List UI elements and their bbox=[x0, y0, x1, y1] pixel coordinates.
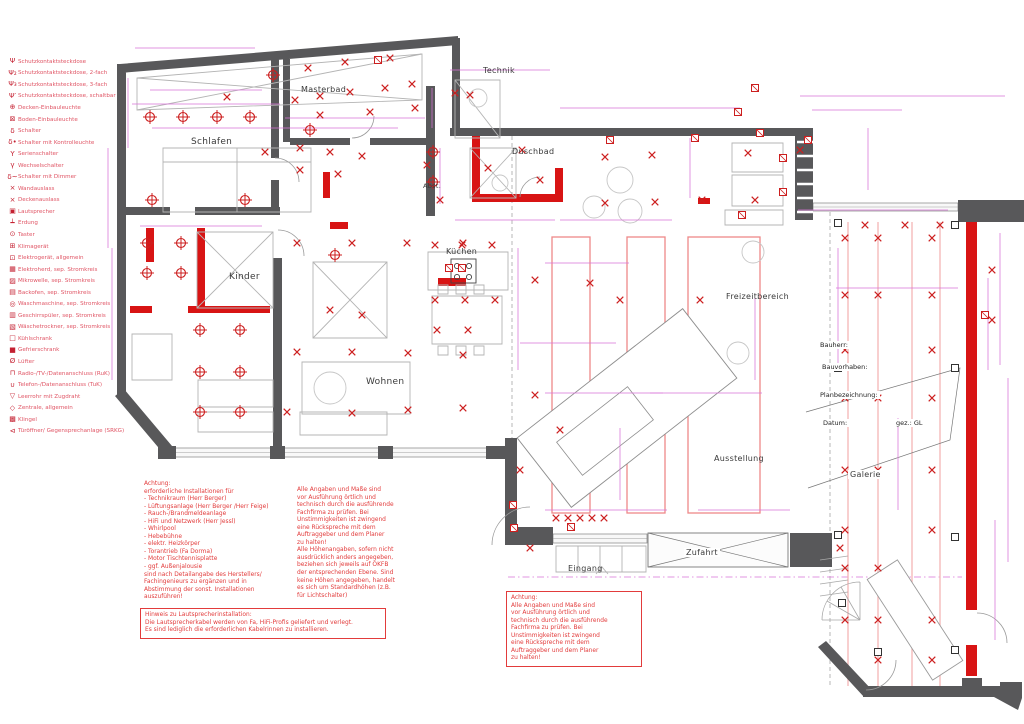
legend-label: Radio-/TV-/Datenanschluss (RuK) bbox=[18, 371, 110, 377]
room-label-technik: Technik bbox=[483, 66, 515, 75]
outlet-x-icon bbox=[297, 167, 304, 174]
outlet-x-icon bbox=[929, 347, 936, 354]
ceiling-light-icon bbox=[243, 110, 257, 124]
outlet-x-icon bbox=[467, 92, 474, 99]
ceiling-light-icon bbox=[210, 110, 224, 124]
outlet-x-icon bbox=[649, 152, 656, 159]
titleblock-bauherr: Bauherr: bbox=[818, 341, 850, 349]
device-box-icon bbox=[752, 85, 759, 92]
outlet-x-icon bbox=[359, 153, 366, 160]
legend-label: Schutzkontaktsteckdose bbox=[18, 59, 86, 65]
device-box-icon bbox=[735, 109, 742, 116]
device-box-icon bbox=[446, 265, 453, 272]
titleblock-frame-lines bbox=[806, 368, 960, 488]
outlet-x-icon bbox=[532, 392, 539, 399]
dimmer-switch-icon: δ~ bbox=[7, 174, 18, 181]
fridge-icon: □ bbox=[7, 335, 18, 342]
device-box-icon bbox=[780, 189, 787, 196]
legend-item: δSchalter bbox=[7, 125, 135, 137]
phone-data-icon: ∪ bbox=[7, 382, 18, 389]
pushbutton-icon: ⊙ bbox=[7, 231, 18, 238]
outlet-x-icon bbox=[532, 277, 539, 284]
room-label-eingang: Eingang bbox=[568, 564, 603, 573]
outlet-x-icon bbox=[842, 235, 849, 242]
legend-item: ▤Backofen, sep. Stromkreis bbox=[7, 287, 135, 299]
ceiling-light-icon bbox=[193, 323, 207, 337]
outlet-x-icon bbox=[349, 240, 356, 247]
outlet-x-icon bbox=[327, 307, 334, 314]
legend-item: ΥSerienschalter bbox=[7, 148, 135, 160]
ground-icon: ┷ bbox=[7, 220, 18, 227]
appliance-icon: ⊡ bbox=[7, 255, 18, 262]
legend-label: Telefon-/Datenanschluss (TuK) bbox=[18, 382, 102, 388]
legend-item: ■Gefrierschrank bbox=[7, 345, 135, 357]
outlet-x-icon bbox=[305, 65, 312, 72]
outlet-x-icon bbox=[537, 177, 544, 184]
ac-unit-icon: ⊞ bbox=[7, 243, 18, 250]
legend-label: Klimagerät bbox=[18, 244, 49, 250]
ceiling-light-icon bbox=[176, 110, 190, 124]
legend-label: Mikrowelle, sep. Stromkreis bbox=[18, 278, 95, 284]
dryer-icon: ▧ bbox=[7, 324, 18, 331]
legend-item: δ•Schalter mit Kontrolleuchte bbox=[7, 137, 135, 149]
device-box-icon bbox=[511, 525, 518, 532]
outlet-x-icon bbox=[527, 545, 534, 552]
room-label-galerie: Galerie bbox=[848, 470, 883, 479]
legend-label: Waschmaschine, sep. Stromkreis bbox=[18, 301, 110, 307]
outlet-x-icon bbox=[294, 349, 301, 356]
wall-outlet-icon: × bbox=[7, 185, 18, 192]
legend-label: Backofen, sep. Stromkreis bbox=[18, 290, 91, 296]
titleblock-planbezeichnung: Planbezeichnung: bbox=[818, 391, 880, 399]
ceiling-light-icon bbox=[143, 110, 157, 124]
legend-label: Gefrierschrank bbox=[18, 347, 59, 353]
outlet-x-icon bbox=[862, 222, 869, 229]
outlet-x-icon bbox=[432, 297, 439, 304]
outlet-x-icon bbox=[652, 199, 659, 206]
outlet-x-icon bbox=[929, 292, 936, 299]
outlet-x-icon bbox=[697, 297, 704, 304]
legend-item: ▩Klingel bbox=[7, 414, 135, 426]
outlet-x-icon bbox=[335, 171, 342, 178]
legend-item: ⊡Elektrogerät, allgemein bbox=[7, 252, 135, 264]
device-box-icon bbox=[568, 524, 575, 531]
device-box-icon bbox=[739, 212, 746, 219]
ceiling-light-icon bbox=[174, 266, 188, 280]
door-opener-icon: ⊲ bbox=[7, 428, 18, 435]
central-unit-icon: ◇ bbox=[7, 405, 18, 412]
outlet-x-icon bbox=[929, 235, 936, 242]
legend-item: Ψ₃Schutzkontaktsteckdose, 3-fach bbox=[7, 79, 135, 91]
titleblock-datum: Datum: bbox=[821, 419, 849, 427]
legend-label: Lüfter bbox=[18, 359, 34, 365]
legend-label: Klingel bbox=[18, 417, 37, 423]
symbol-legend: ΨSchutzkontaktsteckdose Ψ₂Schutzkontakts… bbox=[7, 56, 135, 437]
device-box-icon bbox=[780, 155, 787, 162]
stove-icon: ▦ bbox=[7, 266, 18, 273]
outlet-x-icon bbox=[837, 545, 844, 552]
device-box-icon bbox=[375, 57, 382, 64]
legend-item: ∪Telefon-/Datenanschluss (TuK) bbox=[7, 379, 135, 391]
tv-data-icon: ⊓ bbox=[7, 370, 18, 377]
legend-item: Ψ′Schutzkontaktsteckdose, schaltbar bbox=[7, 91, 135, 103]
ceiling-light-icon bbox=[140, 266, 154, 280]
outlet-x-icon bbox=[842, 527, 849, 534]
legend-label: Lautsprecher bbox=[18, 209, 55, 215]
legend-label: Türöffner/ Gegensprechanlage (SRKG) bbox=[18, 428, 124, 434]
legend-label: Zentrale, allgemein bbox=[18, 405, 73, 411]
outlet-x-icon bbox=[465, 327, 472, 334]
ceiling-light-icon bbox=[328, 248, 342, 262]
outlet-x-icon bbox=[382, 85, 389, 92]
outlet-x-icon bbox=[412, 105, 419, 112]
legend-label: Kühlschrank bbox=[18, 336, 52, 342]
fan-icon: Ø bbox=[7, 358, 18, 365]
legend-item: ▨Mikrowelle, sep. Stromkreis bbox=[7, 275, 135, 287]
legend-item: ▦Elektroherd, sep. Stromkreis bbox=[7, 264, 135, 276]
switch-control-icon: δ• bbox=[7, 139, 18, 146]
legend-item: ▽Leerrohr mit Zugdraht bbox=[7, 391, 135, 403]
outlet-x-icon bbox=[929, 395, 936, 402]
outlet-x-icon bbox=[405, 350, 412, 357]
note-required-installations: Achtung: erforderliche Installationen fü… bbox=[144, 481, 298, 602]
socket-2x-icon: Ψ₂ bbox=[7, 70, 18, 77]
washer-icon: ◎ bbox=[7, 301, 18, 308]
oven-icon: ▤ bbox=[7, 289, 18, 296]
legend-label: Schutzkontaktsteckdose, schaltbar bbox=[18, 93, 116, 99]
ceiling-light-icon bbox=[303, 123, 317, 137]
legend-item: ×Deckenauslass bbox=[7, 195, 135, 207]
outlet-x-icon bbox=[262, 149, 269, 156]
legend-label: Wandauslass bbox=[18, 186, 54, 192]
legend-item: ▥Geschirrspüler, sep. Stromkreis bbox=[7, 310, 135, 322]
outlet-x-icon bbox=[294, 240, 301, 247]
room-label-freizeitbereich: Freizeitbereich bbox=[726, 292, 789, 301]
legend-item: ΨSchutzkontaktsteckdose bbox=[7, 56, 135, 68]
outlet-x-icon bbox=[745, 150, 752, 157]
socket-3x-icon: Ψ₃ bbox=[7, 81, 18, 88]
legend-label: Schalter bbox=[18, 128, 41, 134]
outlet-x-icon bbox=[902, 222, 909, 229]
changeover-switch-icon: γ bbox=[7, 162, 18, 169]
outlet-x-icon bbox=[489, 242, 496, 249]
outlet-x-icon bbox=[577, 515, 584, 522]
legend-label: Serienschalter bbox=[18, 151, 58, 157]
socket-switched-icon: Ψ′ bbox=[7, 93, 18, 100]
room-label-wohnen: Wohnen bbox=[366, 377, 404, 387]
outlet-x-icon bbox=[409, 81, 416, 88]
legend-label: Schutzkontaktsteckdose, 3-fach bbox=[18, 82, 107, 88]
outlet-x-icon bbox=[284, 409, 291, 416]
device-box-icon bbox=[805, 137, 812, 144]
switch-icon: δ bbox=[7, 128, 18, 135]
floor-light-icon: ⊠ bbox=[7, 116, 18, 123]
legend-label: Geschirrspüler, sep. Stromkreis bbox=[18, 313, 106, 319]
ceiling-light-icon bbox=[174, 236, 188, 250]
titleblock-bauvorhaben: Bauvorhaben: bbox=[820, 363, 869, 371]
outlet-x-icon bbox=[553, 515, 560, 522]
outlet-x-icon bbox=[367, 109, 374, 116]
room-label-schlafen: Schlafen bbox=[191, 137, 232, 147]
room-label-duschbad: Duschbad bbox=[512, 147, 554, 156]
outlet-x-icon bbox=[929, 527, 936, 534]
freezer-icon: ■ bbox=[7, 347, 18, 354]
legend-label: Leerrohr mit Zugdraht bbox=[18, 394, 80, 400]
series-switch-icon: Υ bbox=[7, 151, 18, 158]
legend-label: Taster bbox=[18, 232, 35, 238]
legend-item: ⊞Klimagerät bbox=[7, 241, 135, 253]
legend-item: ⊙Taster bbox=[7, 229, 135, 241]
legend-label: Elektroherd, sep. Stromkreis bbox=[18, 267, 97, 273]
outlet-x-icon bbox=[601, 515, 608, 522]
legend-item: ⊕Decken-Einbauleuchte bbox=[7, 102, 135, 114]
outlet-x-icon bbox=[842, 292, 849, 299]
outlet-x-icon bbox=[349, 410, 356, 417]
legend-item: ØLüfter bbox=[7, 356, 135, 368]
legend-label: Decken-Einbauleuchte bbox=[18, 105, 81, 111]
room-label-kueche: Küchen bbox=[446, 247, 477, 256]
outlet-x-icon bbox=[989, 267, 996, 274]
legend-label: Erdung bbox=[18, 220, 38, 226]
outlet-x-icon bbox=[565, 515, 572, 522]
outlet-x-icon bbox=[224, 94, 231, 101]
legend-item: δ~Schalter mit Dimmer bbox=[7, 171, 135, 183]
device-box-icon bbox=[692, 135, 699, 142]
outlet-x-icon bbox=[485, 165, 492, 172]
outlet-x-icon bbox=[462, 297, 469, 304]
device-box-icon bbox=[510, 502, 517, 509]
ceiling-light-icon bbox=[193, 365, 207, 379]
legend-item: ×Wandauslass bbox=[7, 183, 135, 195]
legend-item: γWechselschalter bbox=[7, 160, 135, 172]
legend-label: Wäschetrockner, sep. Stromkreis bbox=[18, 324, 110, 330]
outlet-x-icon bbox=[432, 242, 439, 249]
note-attention-box: Achtung: Alle Angaben und Maße sind vor … bbox=[506, 591, 642, 667]
outlet-x-icon bbox=[434, 327, 441, 334]
legend-item: ▣Lautsprecher bbox=[7, 206, 135, 218]
note-measurements: Alle Angaben und Maße sind vor Ausführun… bbox=[297, 487, 421, 600]
device-box-icon bbox=[607, 137, 614, 144]
legend-item: ┷Erdung bbox=[7, 218, 135, 230]
room-label-abstellraum: Abst. bbox=[423, 182, 441, 190]
outlet-x-icon bbox=[492, 297, 499, 304]
room-label-masterbad: Masterbad bbox=[301, 85, 346, 94]
ceiling-light-icon bbox=[145, 193, 159, 207]
microwave-icon: ▨ bbox=[7, 278, 18, 285]
legend-label: Elektrogerät, allgemein bbox=[18, 255, 84, 261]
room-label-kinder: Kinder bbox=[229, 272, 260, 282]
doorbell-icon: ▩ bbox=[7, 416, 18, 423]
outlet-x-icon bbox=[460, 405, 467, 412]
outlet-x-icon bbox=[929, 467, 936, 474]
outlet-x-icon bbox=[752, 197, 759, 204]
legend-label: Deckenauslass bbox=[18, 197, 60, 203]
legend-label: Schalter mit Kontrolleuchte bbox=[18, 140, 94, 146]
legend-label: Schutzkontaktsteckdose, 2-fach bbox=[18, 70, 107, 76]
outlet-x-icon bbox=[602, 154, 609, 161]
ceiling-light-icon: ⊕ bbox=[7, 104, 18, 111]
outlet-x-icon bbox=[317, 112, 324, 119]
outlet-x-icon bbox=[342, 59, 349, 66]
legend-item: ⊲Türöffner/ Gegensprechanlage (SRKG) bbox=[7, 426, 135, 438]
ceiling-light-icon bbox=[233, 365, 247, 379]
outlet-x-icon bbox=[617, 297, 624, 304]
device-box-icon bbox=[757, 130, 764, 137]
device-box-icon bbox=[459, 265, 466, 272]
legend-item: □Kühlschrank bbox=[7, 333, 135, 345]
outlet-x-icon bbox=[404, 240, 411, 247]
outlet-x-icon bbox=[589, 515, 596, 522]
floorplan-sheet: ΨSchutzkontaktsteckdose Ψ₂Schutzkontakts… bbox=[0, 0, 1024, 724]
outlet-x-icon bbox=[517, 467, 524, 474]
legend-label: Wechselschalter bbox=[18, 163, 64, 169]
ceiling-outlet-icon: × bbox=[7, 197, 18, 204]
legend-item: ◇Zentrale, allgemein bbox=[7, 402, 135, 414]
outlet-x-icon bbox=[327, 149, 334, 156]
outlet-x-icon bbox=[989, 317, 996, 324]
dishwasher-icon: ▥ bbox=[7, 312, 18, 319]
conduit-icon: ▽ bbox=[7, 393, 18, 400]
outlet-x-icon bbox=[292, 97, 299, 104]
ceiling-light-icon bbox=[238, 193, 252, 207]
legend-item: ⊠Boden-Einbauleuchte bbox=[7, 114, 135, 126]
legend-item: ⊓Radio-/TV-/Datenanschluss (RuK) bbox=[7, 368, 135, 380]
outlet-x-icon bbox=[349, 349, 356, 356]
titleblock-gezeichnet: gez.: GL bbox=[894, 419, 925, 427]
room-label-ausstellung: Ausstellung bbox=[714, 454, 764, 463]
device-box-icon bbox=[982, 312, 989, 319]
ceiling-light-icon bbox=[233, 323, 247, 337]
legend-item: Ψ₂Schutzkontaktsteckdose, 2-fach bbox=[7, 68, 135, 80]
speaker-icon: ▣ bbox=[7, 208, 18, 215]
note-speaker-installation: Hinweis zu Lautsprecherinstallation: Die… bbox=[140, 608, 386, 639]
legend-label: Boden-Einbauleuchte bbox=[18, 117, 78, 123]
socket-icon: Ψ bbox=[7, 58, 18, 65]
legend-item: ▧Wäschetrockner, sep. Stromkreis bbox=[7, 322, 135, 334]
legend-label: Schalter mit Dimmer bbox=[18, 174, 76, 180]
room-label-zufahrt: Zufahrt bbox=[684, 548, 720, 557]
legend-item: ◎Waschmaschine, sep. Stromkreis bbox=[7, 298, 135, 310]
